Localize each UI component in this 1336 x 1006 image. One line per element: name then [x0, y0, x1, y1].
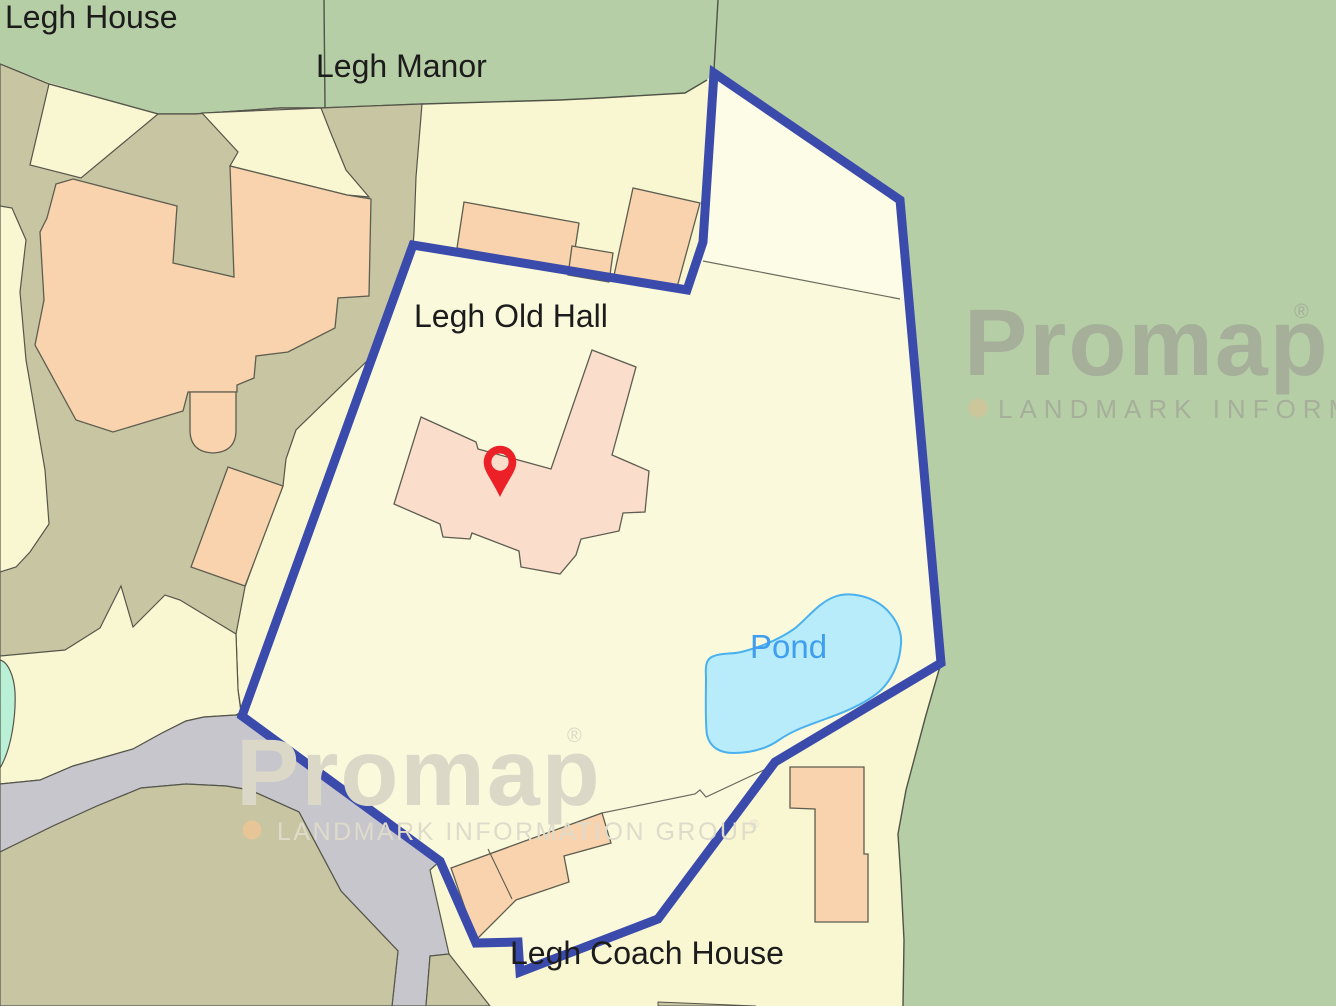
svg-text:Promap: Promap	[236, 720, 602, 826]
svg-text:®: ®	[750, 817, 759, 831]
svg-text:LANDMARK INFORMATION GROUP: LANDMARK INFORMATION GROUP	[277, 818, 760, 846]
svg-text:Legh Manor: Legh Manor	[316, 48, 487, 84]
svg-text:Promap: Promap	[964, 290, 1330, 396]
svg-text:Pond: Pond	[750, 628, 827, 665]
svg-text:Legh Coach House: Legh Coach House	[510, 935, 784, 971]
svg-text:Legh House: Legh House	[5, 0, 178, 35]
svg-text:LANDMARK INFORMATION: LANDMARK INFORMATION	[998, 394, 1336, 424]
svg-text:®: ®	[567, 725, 582, 747]
svg-text:Legh Old Hall: Legh Old Hall	[414, 298, 608, 334]
svg-text:®: ®	[1294, 301, 1309, 323]
